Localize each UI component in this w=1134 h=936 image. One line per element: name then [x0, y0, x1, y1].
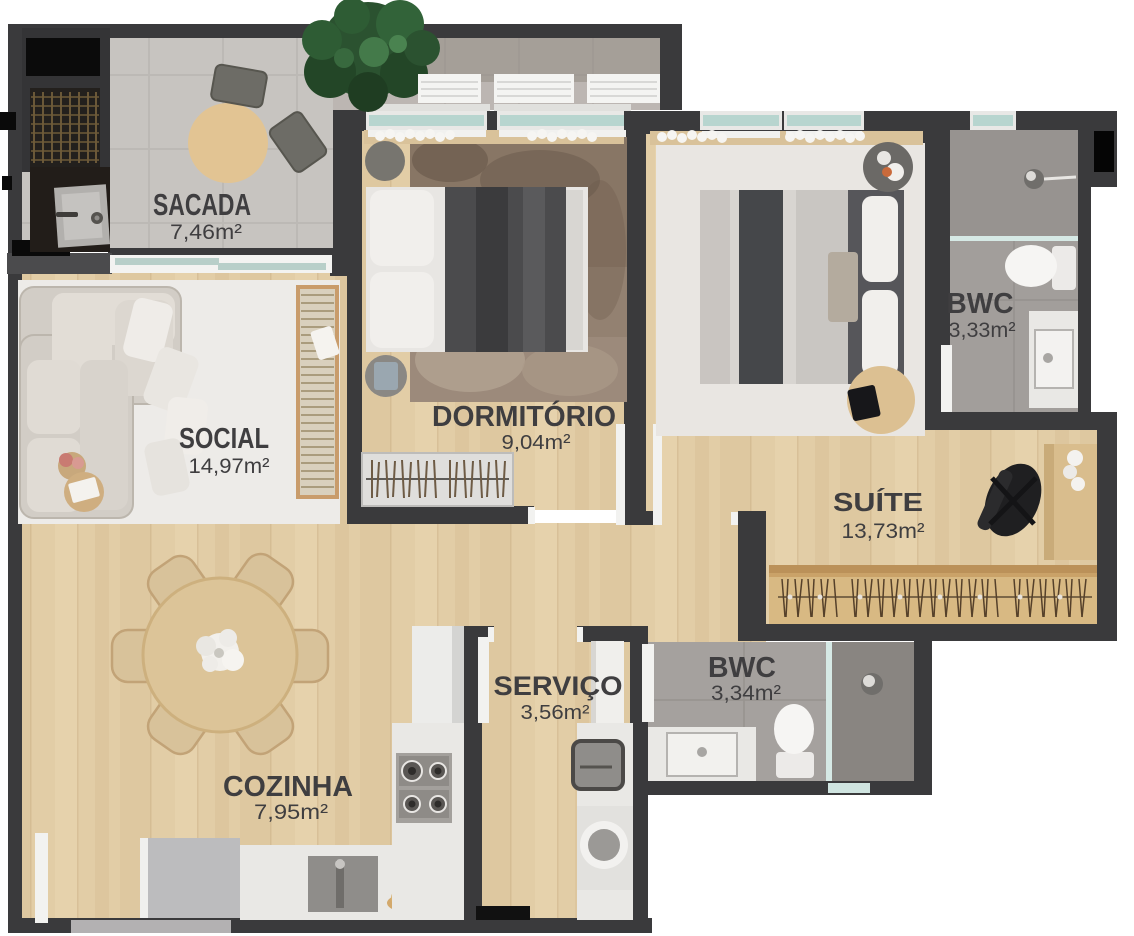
svg-text:13,73m²: 13,73m² — [842, 520, 925, 543]
svg-text:SACADA: SACADA — [153, 187, 251, 222]
svg-text:3,34m²: 3,34m² — [711, 682, 781, 705]
svg-text:9,04m²: 9,04m² — [502, 431, 571, 454]
svg-text:3,33m²: 3,33m² — [949, 319, 1016, 342]
svg-text:SOCIAL: SOCIAL — [179, 423, 269, 455]
svg-text:3,56m²: 3,56m² — [521, 702, 590, 724]
svg-text:SERVIÇO: SERVIÇO — [494, 671, 623, 701]
svg-text:BWC: BWC — [708, 652, 776, 684]
svg-text:BWC: BWC — [947, 288, 1014, 320]
svg-text:DORMITÓRIO: DORMITÓRIO — [432, 399, 616, 433]
svg-text:7,95m²: 7,95m² — [254, 801, 328, 824]
svg-text:14,97m²: 14,97m² — [189, 455, 270, 478]
svg-text:COZINHA: COZINHA — [223, 771, 353, 803]
svg-text:7,46m²: 7,46m² — [170, 221, 242, 244]
svg-text:SUÍTE: SUÍTE — [833, 487, 923, 517]
